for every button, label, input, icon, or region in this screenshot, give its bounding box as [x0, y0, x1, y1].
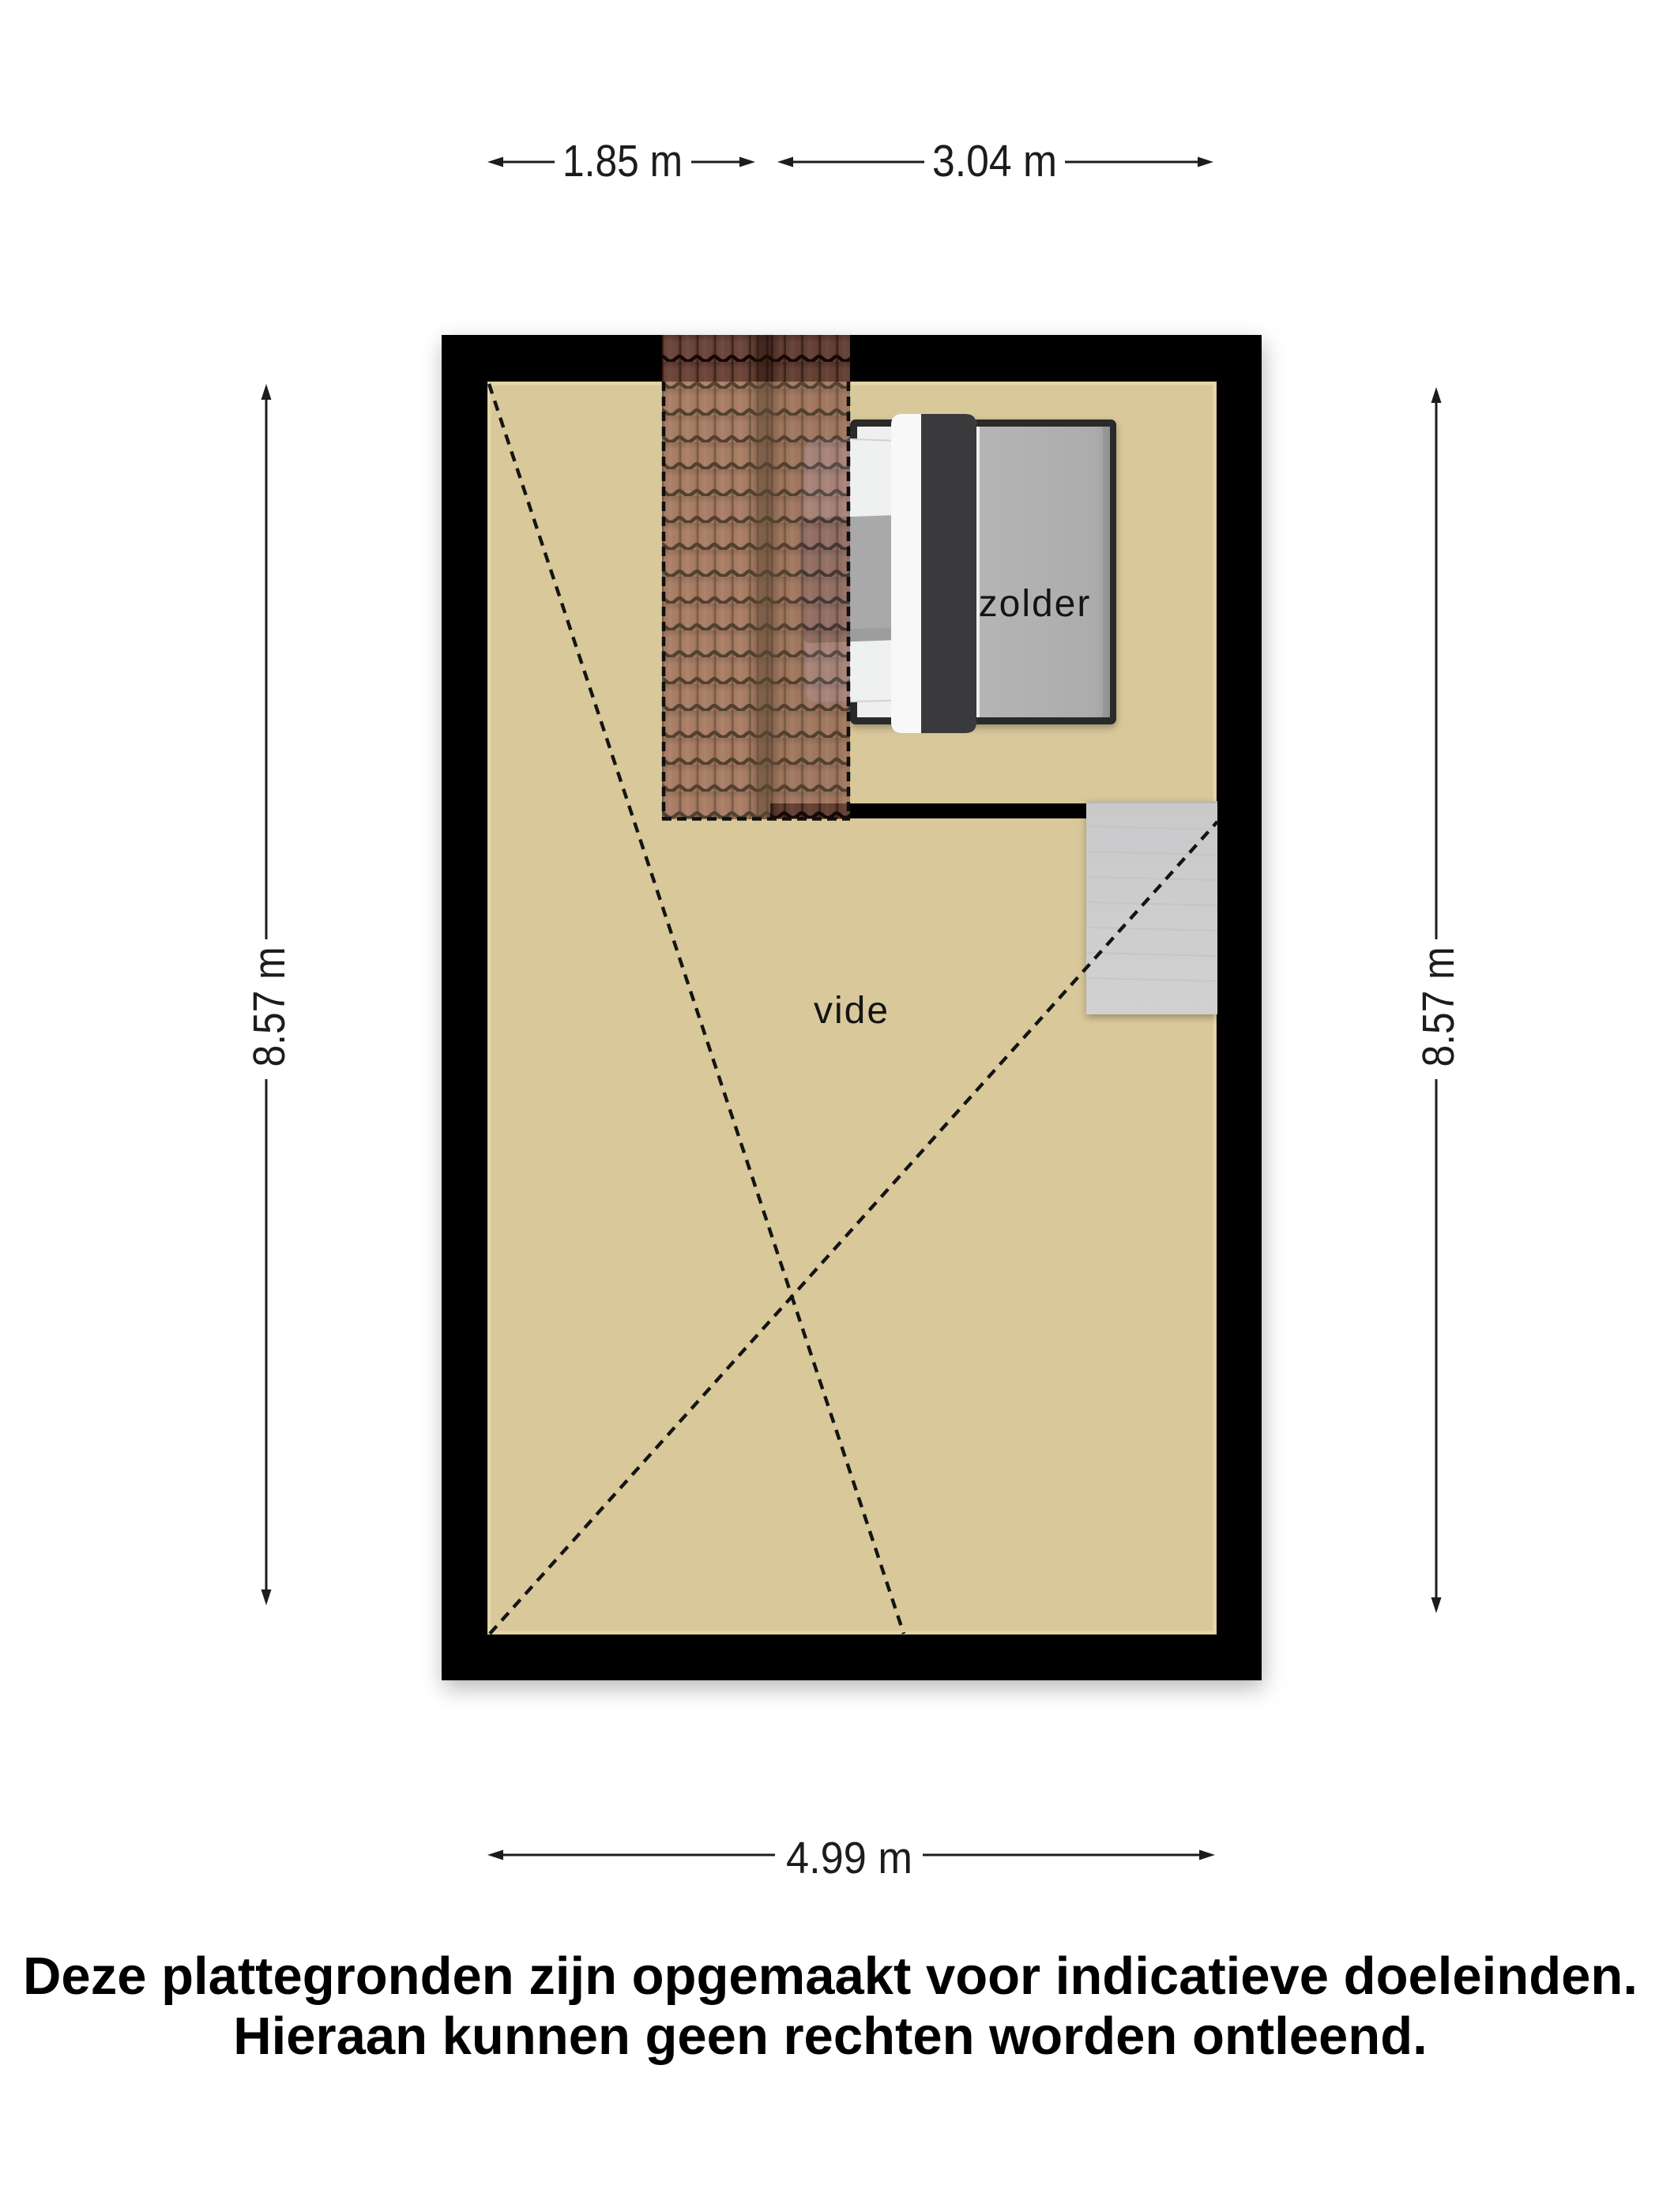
svg-text:zolder: zolder	[979, 583, 1092, 625]
svg-text:4.99 m: 4.99 m	[786, 1833, 912, 1883]
svg-text:3.04 m: 3.04 m	[932, 136, 1057, 186]
svg-text:Deze plattegronden zijn opgema: Deze plattegronden zijn opgemaakt voor i…	[23, 1947, 1638, 2006]
svg-text:1.85 m: 1.85 m	[562, 136, 683, 186]
svg-text:Hieraan kunnen geen rechten wo: Hieraan kunnen geen rechten worden ontle…	[233, 2007, 1428, 2066]
svg-text:8.57 m: 8.57 m	[244, 947, 295, 1067]
svg-text:8.57 m: 8.57 m	[1413, 947, 1464, 1067]
svg-text:vide: vide	[814, 990, 890, 1032]
